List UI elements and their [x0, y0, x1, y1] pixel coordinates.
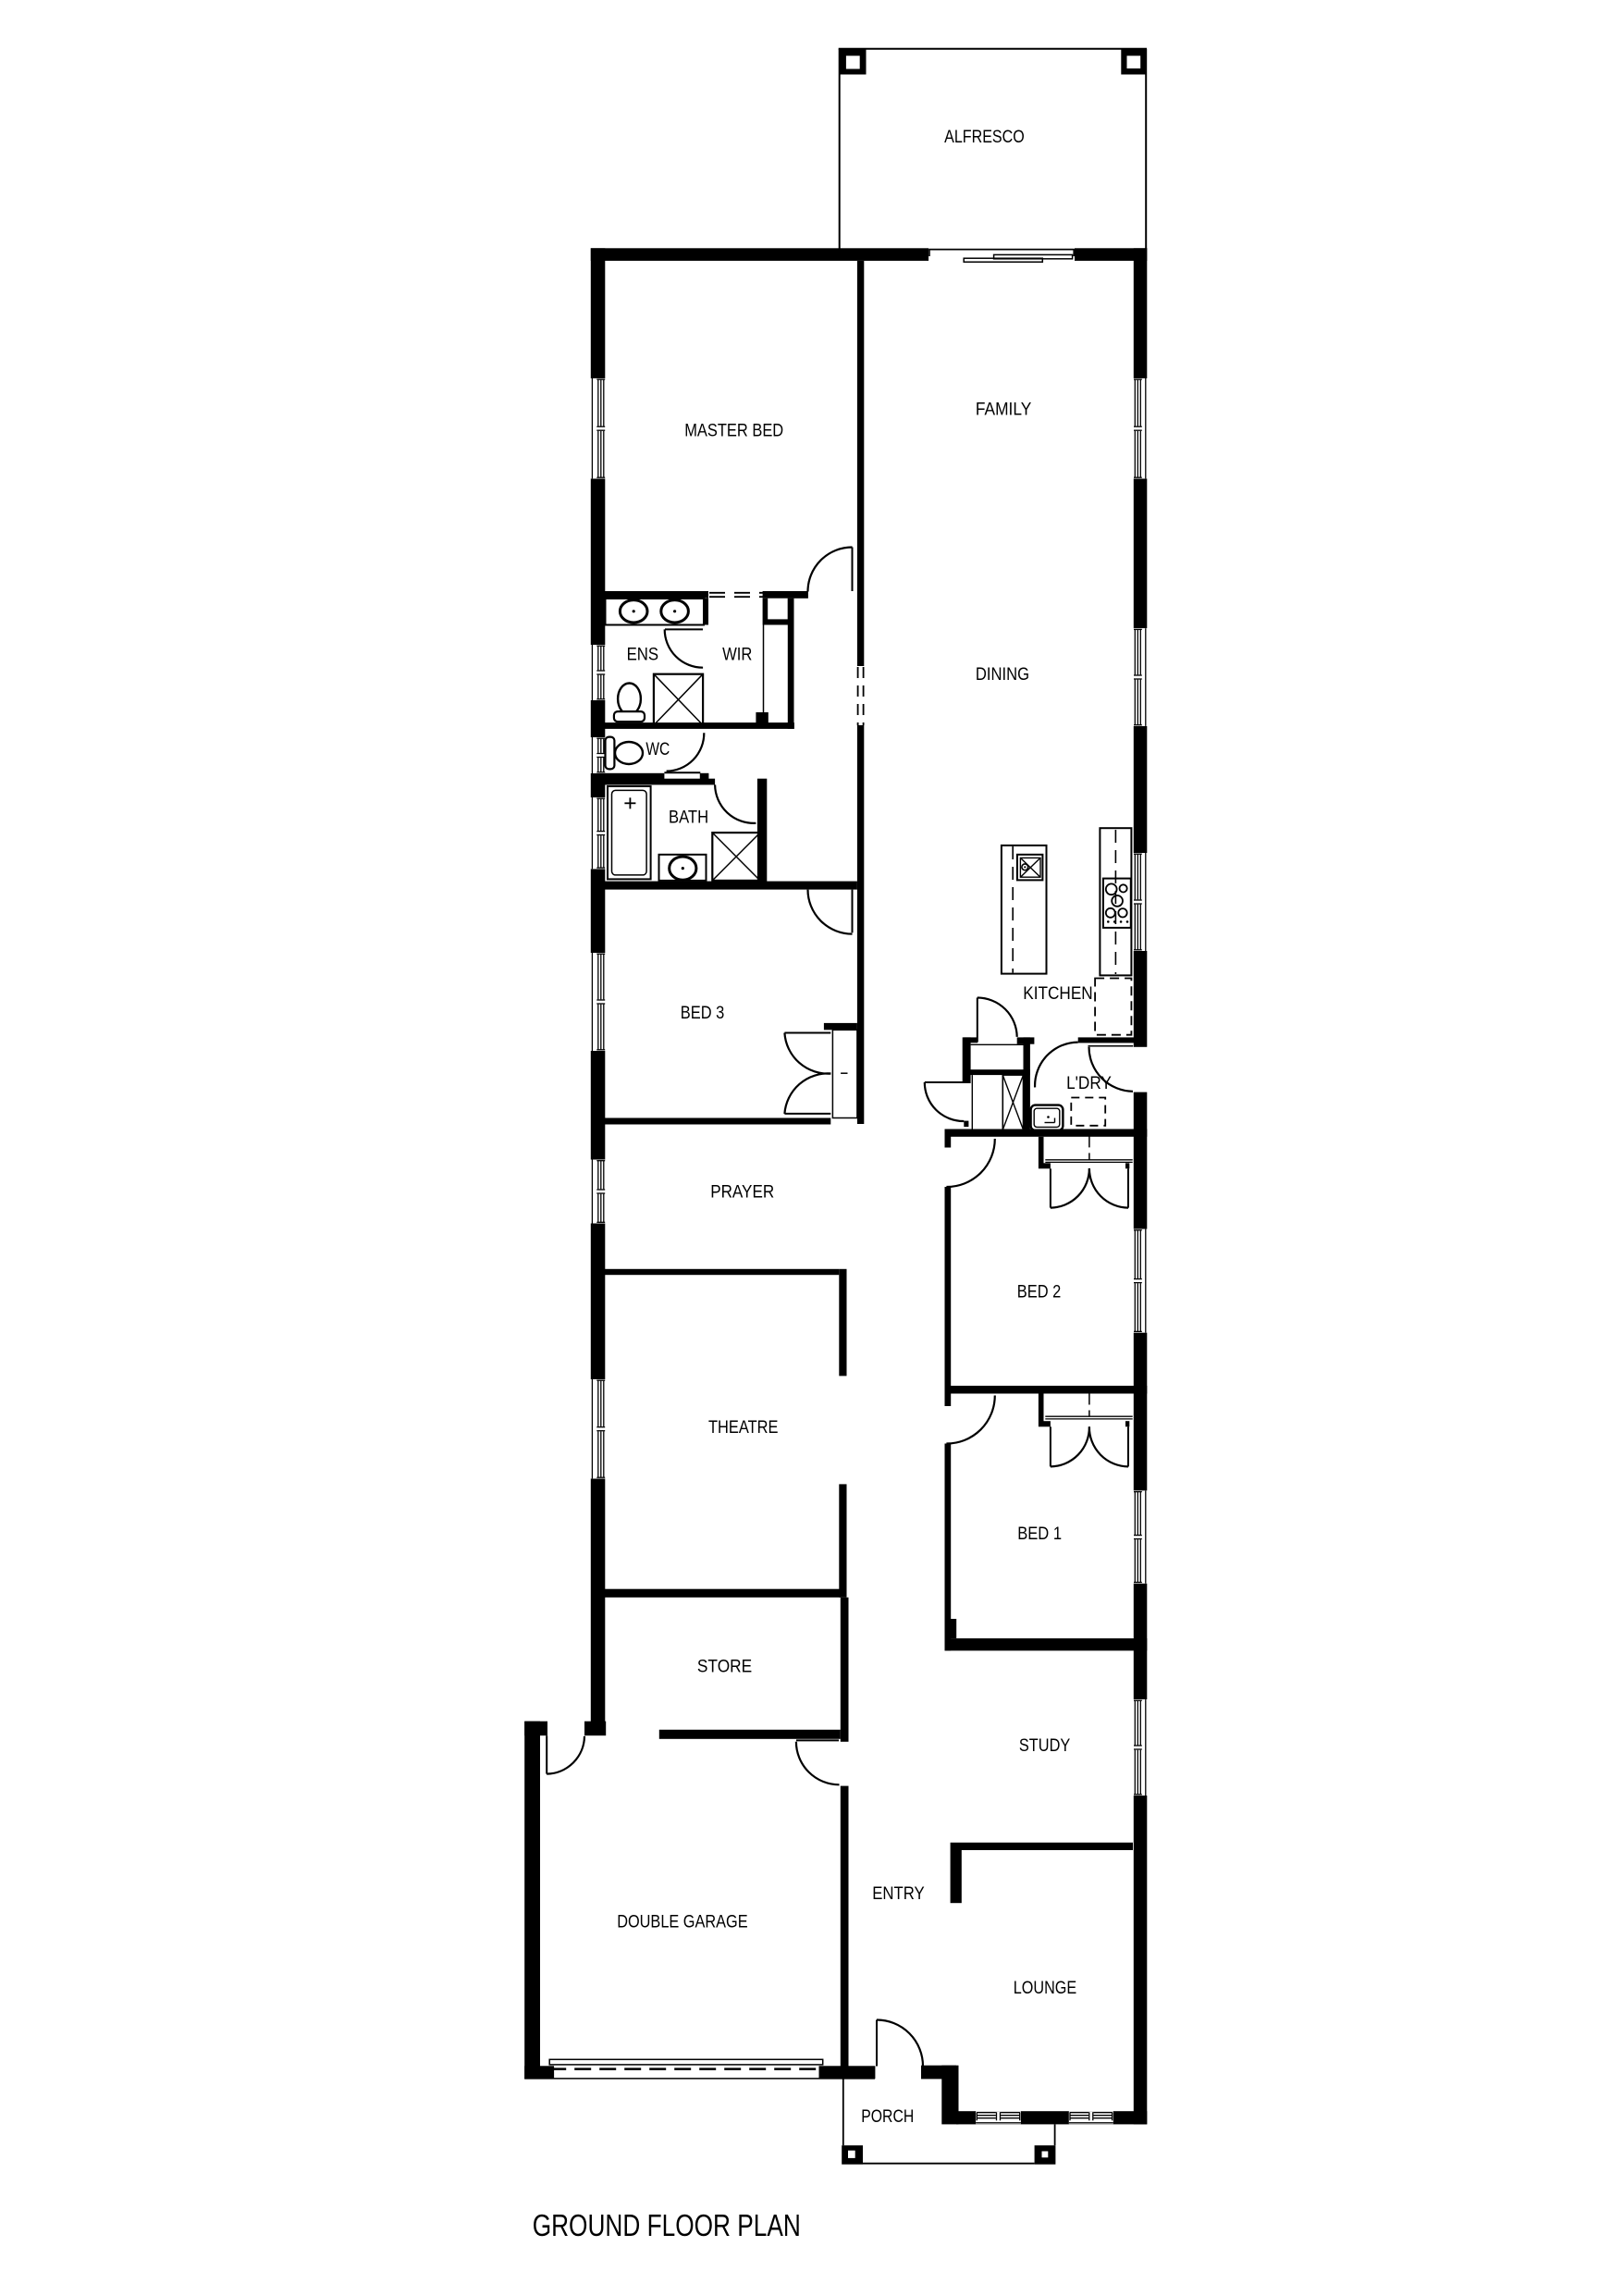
svg-text:LOUNGE: LOUNGE — [1014, 1978, 1076, 1998]
svg-text:PRAYER: PRAYER — [710, 1182, 774, 1203]
svg-text:THEATRE: THEATRE — [708, 1417, 779, 1438]
svg-text:PORCH: PORCH — [861, 2106, 914, 2127]
svg-text:STUDY: STUDY — [1019, 1735, 1070, 1756]
svg-text:ENS: ENS — [627, 645, 659, 665]
svg-text:BATH: BATH — [669, 808, 708, 828]
svg-text:KITCHEN: KITCHEN — [1023, 983, 1092, 1004]
svg-text:ALFRESCO: ALFRESCO — [944, 127, 1025, 147]
svg-text:BED 2: BED 2 — [1017, 1281, 1062, 1302]
svg-text:GROUND FLOOR PLAN: GROUND FLOOR PLAN — [533, 2208, 801, 2242]
svg-text:BED 3: BED 3 — [681, 1003, 725, 1023]
svg-text:DOUBLE GARAGE: DOUBLE GARAGE — [617, 1911, 747, 1932]
svg-text:MASTER BED: MASTER BED — [684, 421, 783, 441]
svg-text:WC: WC — [646, 739, 670, 759]
svg-text:STORE: STORE — [697, 1657, 752, 1677]
svg-text:FAMILY: FAMILY — [976, 399, 1031, 419]
svg-text:DINING: DINING — [976, 664, 1029, 685]
svg-text:WIR: WIR — [722, 645, 752, 665]
svg-text:BED 1: BED 1 — [1017, 1524, 1062, 1544]
svg-text:L'DRY: L'DRY — [1066, 1073, 1112, 1093]
svg-text:ENTRY: ENTRY — [872, 1883, 925, 1904]
